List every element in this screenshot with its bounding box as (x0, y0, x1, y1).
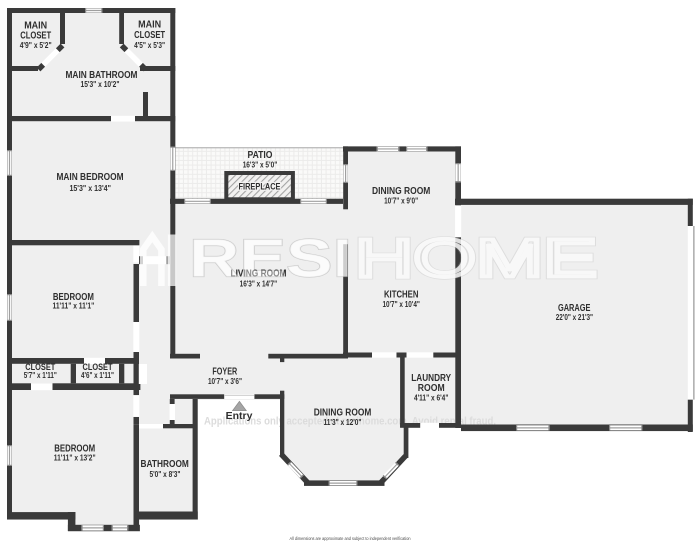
svg-text:CLOSET: CLOSET (134, 30, 165, 41)
svg-text:KITCHEN: KITCHEN (384, 290, 419, 301)
svg-text:11'11" x 13'2": 11'11" x 13'2" (54, 454, 96, 463)
svg-text:4'6" x 1'11": 4'6" x 1'11" (81, 371, 114, 380)
svg-text:MAIN BATHROOM: MAIN BATHROOM (66, 70, 138, 81)
svg-text:15'3" x 13'4": 15'3" x 13'4" (69, 184, 111, 193)
svg-text:22'0" x 21'3": 22'0" x 21'3" (556, 313, 593, 322)
svg-text:16'3" x 5'0": 16'3" x 5'0" (243, 161, 278, 170)
svg-text:11'3" x 12'0": 11'3" x 12'0" (324, 418, 362, 427)
svg-text:11'11" x 11'1": 11'11" x 11'1" (53, 302, 95, 311)
svg-text:CLOSET: CLOSET (20, 30, 51, 41)
svg-text:Entry: Entry (226, 410, 253, 422)
svg-text:10'7" x 9'0": 10'7" x 9'0" (384, 197, 418, 206)
svg-text:10'7" x 10'4": 10'7" x 10'4" (382, 300, 420, 309)
svg-text:DINING ROOM: DINING ROOM (372, 186, 430, 197)
svg-text:LIVING ROOM: LIVING ROOM (231, 269, 287, 280)
svg-text:4'5" x 5'3": 4'5" x 5'3" (134, 41, 165, 50)
svg-text:10'7" x 3'6": 10'7" x 3'6" (208, 377, 242, 386)
svg-text:BATHROOM: BATHROOM (141, 459, 189, 470)
svg-text:FIREPLACE: FIREPLACE (239, 181, 281, 191)
svg-text:DINING ROOM: DINING ROOM (314, 408, 372, 419)
svg-text:RESI: RESI (189, 229, 352, 289)
svg-text:5'7" x 1'11": 5'7" x 1'11" (24, 371, 57, 380)
svg-text:MAIN BEDROOM: MAIN BEDROOM (57, 172, 124, 183)
svg-text:4'11" x 6'4": 4'11" x 6'4" (414, 394, 449, 403)
svg-text:LAUNDRY: LAUNDRY (411, 373, 451, 384)
svg-text:15'3" x 10'2": 15'3" x 10'2" (81, 80, 120, 89)
svg-text:PATIO: PATIO (248, 150, 273, 161)
svg-text:4'9" x 5'2": 4'9" x 5'2" (20, 41, 52, 50)
svg-text:5'0" x 8'3": 5'0" x 8'3" (149, 470, 180, 479)
svg-text:All dimensions are approximate: All dimensions are approximate and subje… (290, 536, 411, 542)
svg-text:MAIN: MAIN (138, 20, 161, 31)
svg-text:HOME: HOME (355, 229, 597, 289)
